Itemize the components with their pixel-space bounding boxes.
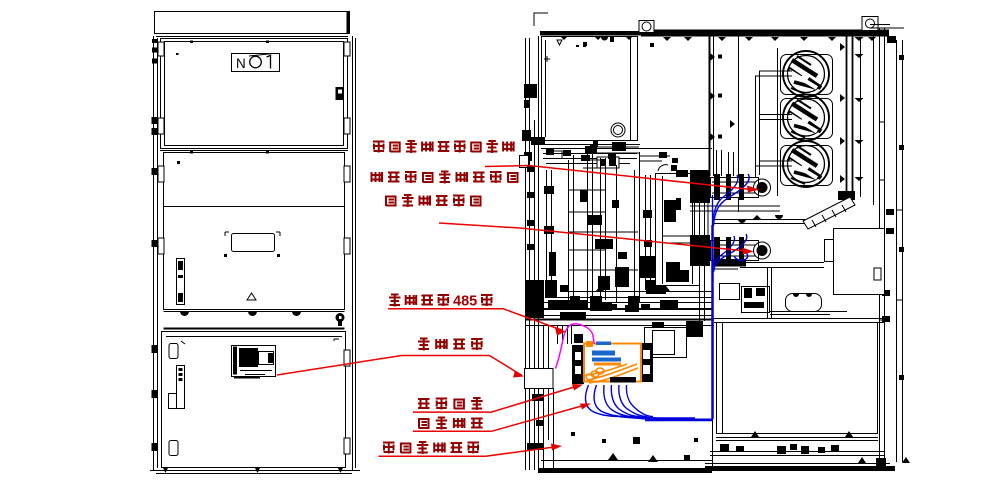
- svg-text:N: N: [236, 56, 248, 71]
- svg-text:485: 485: [453, 294, 477, 310]
